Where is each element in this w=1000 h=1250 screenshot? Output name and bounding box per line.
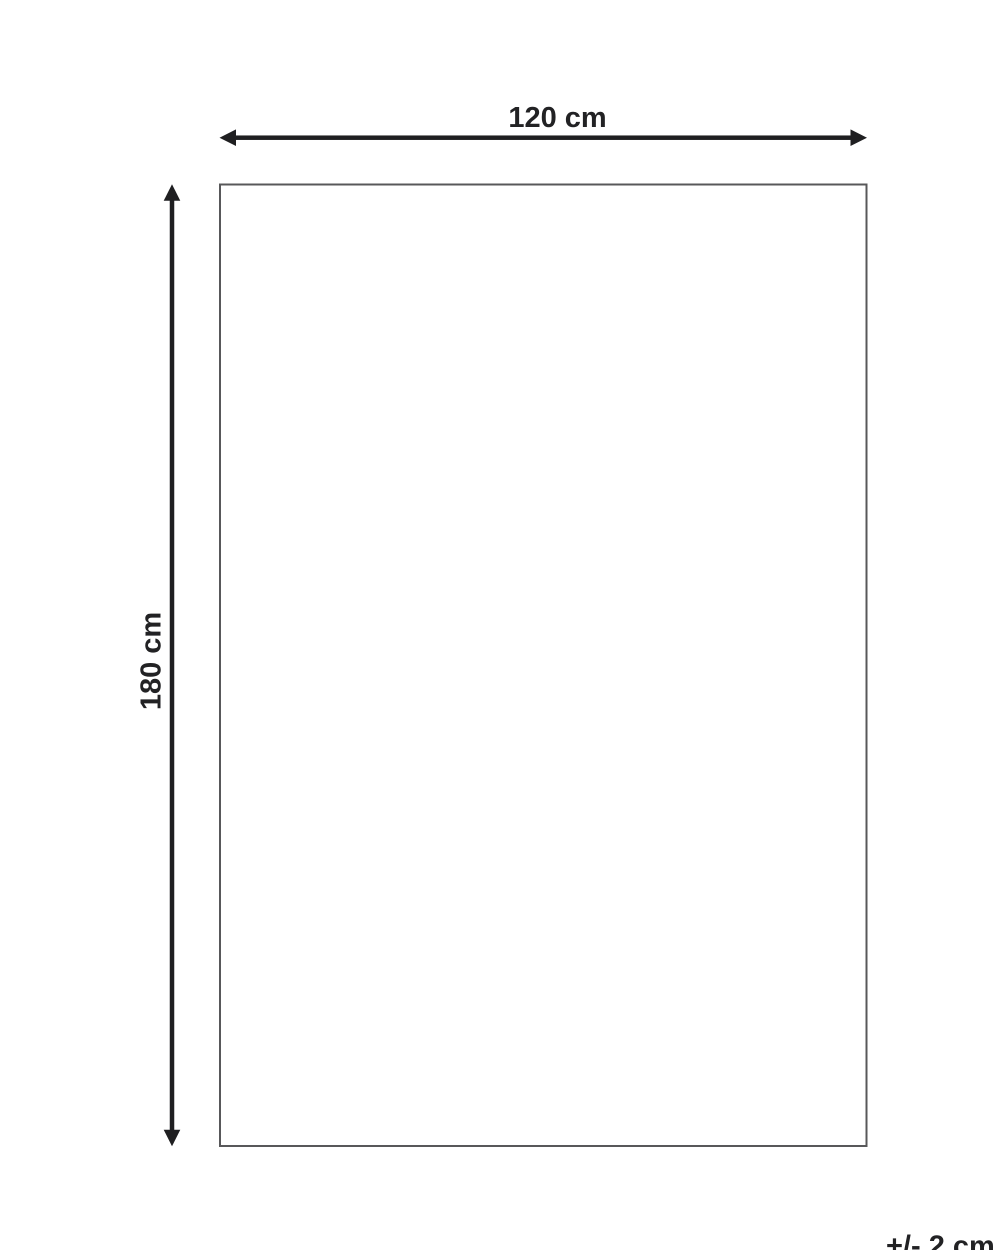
svg-text:+/- 2 cm: +/- 2 cm <box>886 1231 995 1250</box>
svg-text:120 cm: 120 cm <box>508 102 606 134</box>
svg-text:180 cm: 180 cm <box>136 612 168 710</box>
